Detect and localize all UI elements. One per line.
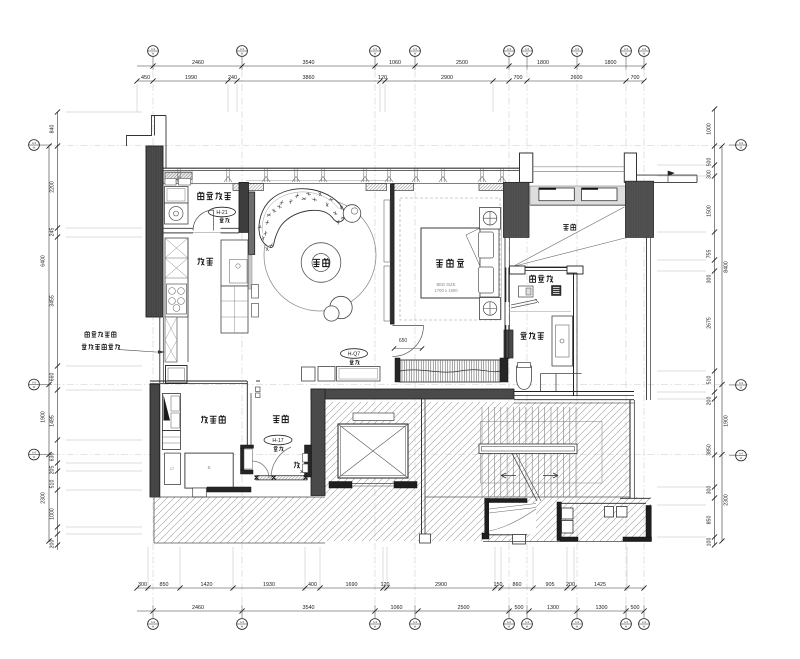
svg-text:1060: 1060 <box>389 60 401 66</box>
svg-text:500: 500 <box>707 158 713 167</box>
svg-text:300: 300 <box>707 275 713 284</box>
svg-text:300: 300 <box>707 486 713 495</box>
svg-text:1900: 1900 <box>724 415 730 427</box>
svg-text:510: 510 <box>50 480 56 489</box>
svg-text:400: 400 <box>308 582 317 588</box>
svg-text:150: 150 <box>494 582 503 588</box>
svg-text:A-9: A-9 <box>624 620 629 624</box>
svg-text:200: 200 <box>707 397 713 406</box>
svg-text:2460: 2460 <box>192 60 204 66</box>
svg-text:A-9: A-9 <box>32 381 37 385</box>
svg-text:510: 510 <box>707 376 713 385</box>
svg-text:1690: 1690 <box>346 582 358 588</box>
svg-text:850: 850 <box>707 516 713 525</box>
svg-text:A-9: A-9 <box>240 620 245 624</box>
svg-text:860: 860 <box>513 582 522 588</box>
svg-text:300: 300 <box>138 582 147 588</box>
svg-text:2600: 2600 <box>571 75 583 81</box>
svg-text:2675: 2675 <box>707 317 713 329</box>
svg-text:A-9: A-9 <box>413 620 418 624</box>
svg-text:1495: 1495 <box>50 415 56 427</box>
svg-text:300: 300 <box>707 170 713 179</box>
svg-text:S: S <box>207 465 210 470</box>
svg-text:2500: 2500 <box>456 60 468 66</box>
svg-text:840: 840 <box>50 125 56 134</box>
svg-text:2300: 2300 <box>724 494 730 506</box>
svg-text:120: 120 <box>378 75 387 81</box>
svg-text:1300: 1300 <box>547 605 559 611</box>
svg-text:100: 100 <box>707 538 713 547</box>
svg-text:A-9: A-9 <box>373 47 378 51</box>
svg-text:8400: 8400 <box>724 261 730 273</box>
svg-text:3850: 3850 <box>707 444 713 456</box>
svg-text:630: 630 <box>50 453 56 462</box>
svg-text:1425: 1425 <box>594 582 606 588</box>
svg-text:1800: 1800 <box>605 60 617 66</box>
svg-text:6400: 6400 <box>41 255 47 267</box>
svg-text:A-9: A-9 <box>151 620 156 624</box>
svg-text:A-9: A-9 <box>32 141 37 145</box>
svg-text:A-9: A-9 <box>151 47 156 51</box>
svg-text:A-9: A-9 <box>525 47 530 51</box>
svg-text:A-9: A-9 <box>525 620 530 624</box>
svg-text:A-9: A-9 <box>624 47 629 51</box>
svg-text:A-9: A-9 <box>240 47 245 51</box>
svg-text:2500: 2500 <box>458 605 470 611</box>
svg-text:755: 755 <box>707 250 713 259</box>
svg-text:200: 200 <box>566 582 575 588</box>
svg-text:500: 500 <box>515 605 524 611</box>
svg-text:120: 120 <box>381 582 390 588</box>
svg-text:1500: 1500 <box>707 205 713 217</box>
svg-text:2460: 2460 <box>192 605 204 611</box>
svg-text:500: 500 <box>631 605 640 611</box>
svg-text:A-9: A-9 <box>507 47 512 51</box>
svg-text:1060: 1060 <box>391 605 403 611</box>
svg-text:1000: 1000 <box>707 123 713 135</box>
svg-text:A-9: A-9 <box>739 141 744 145</box>
svg-text:450: 450 <box>141 75 150 81</box>
svg-text:1990: 1990 <box>185 75 197 81</box>
svg-text:A-9: A-9 <box>32 451 37 455</box>
svg-text:A-9: A-9 <box>575 620 580 624</box>
svg-text:A-9: A-9 <box>642 47 647 51</box>
svg-text:3540: 3540 <box>303 60 315 66</box>
svg-text:650: 650 <box>399 338 408 344</box>
svg-text:A-9: A-9 <box>413 47 418 51</box>
svg-text:1800: 1800 <box>537 60 549 66</box>
svg-text:2900: 2900 <box>441 75 453 81</box>
svg-text:2200: 2200 <box>50 181 56 193</box>
svg-text:1700 x 1900: 1700 x 1900 <box>434 288 458 293</box>
svg-text:205: 205 <box>50 466 56 475</box>
svg-text:700: 700 <box>631 75 640 81</box>
svg-text:1420: 1420 <box>201 582 213 588</box>
svg-text:H-17: H-17 <box>272 438 283 444</box>
svg-text:3540: 3540 <box>303 605 315 611</box>
svg-text:660: 660 <box>50 373 56 382</box>
svg-text:H-Q7: H-Q7 <box>348 352 361 358</box>
svg-text:A-9: A-9 <box>739 381 744 385</box>
svg-text:A-9: A-9 <box>575 47 580 51</box>
svg-text:240: 240 <box>228 75 237 81</box>
svg-text:3455: 3455 <box>50 295 56 307</box>
svg-text:1900: 1900 <box>41 411 47 423</box>
svg-text:1300: 1300 <box>596 605 608 611</box>
svg-text:A-9: A-9 <box>507 620 512 624</box>
svg-text:2900: 2900 <box>435 582 447 588</box>
svg-text:245: 245 <box>50 228 56 237</box>
svg-text:A-9: A-9 <box>642 620 647 624</box>
svg-text:H-21: H-21 <box>216 210 227 216</box>
svg-text:905: 905 <box>546 582 555 588</box>
svg-text:1000: 1000 <box>50 508 56 520</box>
svg-text:BED SIZE: BED SIZE <box>436 282 455 287</box>
svg-text:3860: 3860 <box>303 75 315 81</box>
svg-text:A-9: A-9 <box>739 452 744 456</box>
svg-text:850: 850 <box>160 582 169 588</box>
svg-text:1930: 1930 <box>263 582 275 588</box>
svg-text:17: 17 <box>170 467 174 471</box>
svg-text:A-9: A-9 <box>373 620 378 624</box>
svg-text:200: 200 <box>50 540 56 549</box>
svg-text:700: 700 <box>514 75 523 81</box>
svg-text:2300: 2300 <box>41 492 47 504</box>
